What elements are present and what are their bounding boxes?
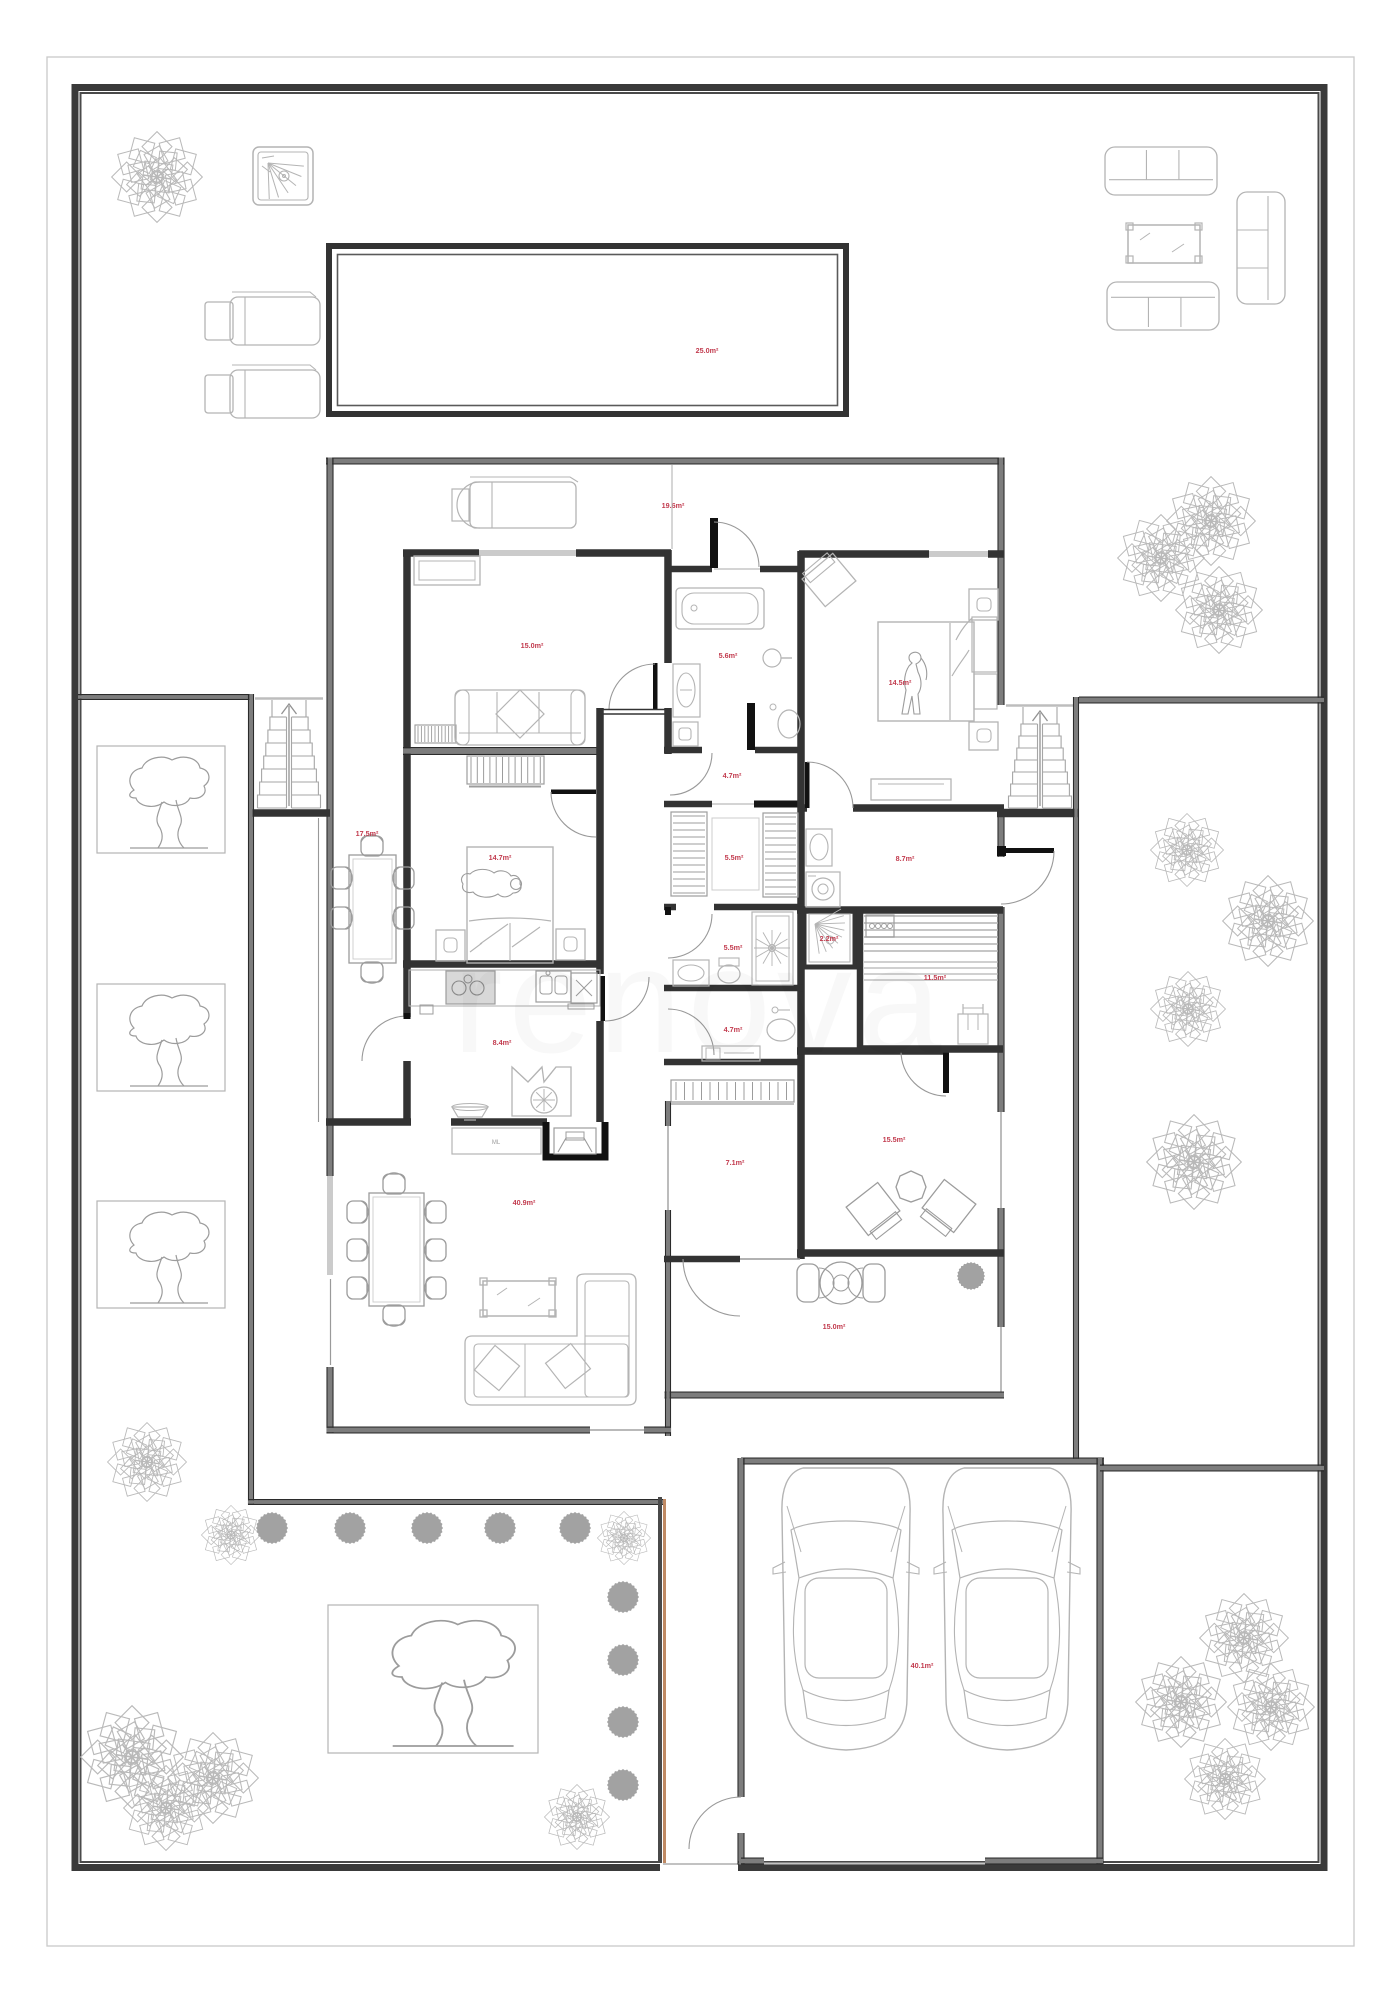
svg-text:5.5m²: 5.5m² (725, 853, 744, 862)
svg-text:15.0m²: 15.0m² (521, 641, 544, 650)
svg-text:5.6m²: 5.6m² (719, 651, 738, 660)
svg-text:17.5m²: 17.5m² (356, 829, 379, 838)
svg-text:7.1m²: 7.1m² (726, 1158, 745, 1167)
svg-text:renova: renova (453, 916, 948, 1084)
svg-text:15.5m²: 15.5m² (883, 1135, 906, 1144)
svg-text:15.0m²: 15.0m² (823, 1322, 846, 1331)
svg-text:4.7m²: 4.7m² (723, 771, 742, 780)
svg-text:25.0m²: 25.0m² (696, 346, 719, 355)
svg-text:8.7m²: 8.7m² (896, 854, 915, 863)
svg-text:40.1m²: 40.1m² (911, 1661, 934, 1670)
svg-text:19.6m²: 19.6m² (662, 501, 685, 510)
svg-text:40.9m²: 40.9m² (513, 1198, 536, 1207)
svg-text:14.7m²: 14.7m² (489, 853, 512, 862)
svg-text:14.5m²: 14.5m² (889, 678, 912, 687)
svg-text:ML: ML (492, 1140, 501, 1146)
